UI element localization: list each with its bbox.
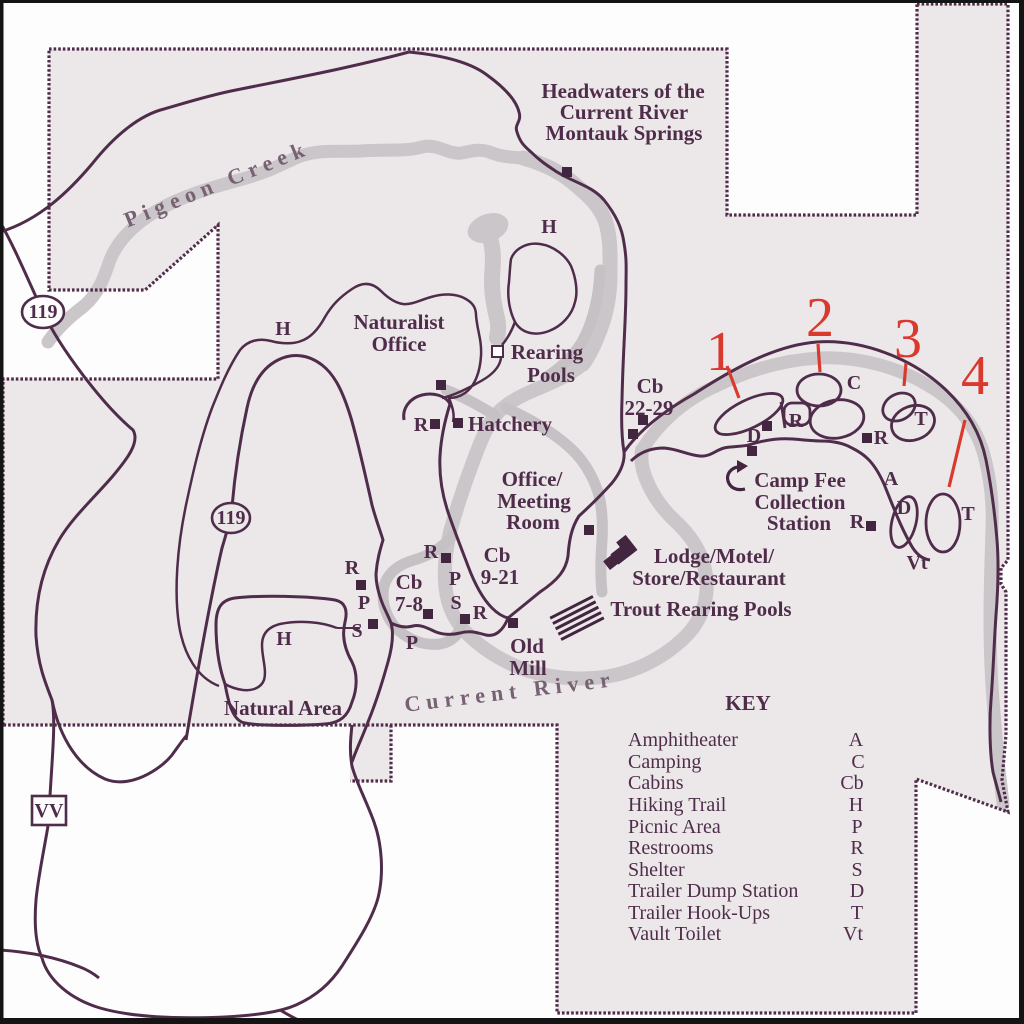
svg-text:R: R [414,414,429,436]
svg-text:Cb: Cb [396,570,423,594]
svg-text:3: 3 [894,308,922,370]
svg-text:D: D [897,497,911,519]
svg-text:Office: Office [372,332,427,356]
svg-text:Camp Fee: Camp Fee [754,468,846,492]
svg-text:Vault Toilet: Vault Toilet [628,923,722,945]
svg-text:R: R [473,602,488,624]
svg-text:Naturalist: Naturalist [354,310,445,334]
svg-text:119: 119 [29,301,58,323]
svg-text:R: R [874,427,889,449]
svg-text:R: R [345,557,360,579]
svg-text:P: P [449,568,461,590]
svg-text:A: A [849,729,864,751]
svg-text:KEY: KEY [725,691,771,715]
svg-text:Vt: Vt [906,552,927,574]
svg-text:Cabins: Cabins [628,772,684,794]
svg-text:P: P [851,816,862,838]
svg-text:22-29: 22-29 [625,396,674,420]
svg-text:Hiking Trail: Hiking Trail [628,794,727,816]
svg-text:H: H [275,318,291,340]
svg-text:Cb: Cb [637,374,664,398]
svg-text:VV: VV [35,800,64,822]
svg-text:H: H [276,628,292,650]
svg-text:Natural Area: Natural Area [224,696,343,720]
svg-text:P: P [406,632,418,654]
svg-text:Room: Room [506,510,560,534]
svg-text:Shelter: Shelter [628,859,685,881]
svg-text:T: T [961,503,975,525]
svg-text:2: 2 [806,287,834,349]
svg-text:S: S [851,859,862,881]
svg-text:9-21: 9-21 [481,565,520,589]
svg-text:Trailer Dump Station: Trailer Dump Station [628,880,798,902]
svg-text:D: D [850,880,864,902]
svg-text:Restrooms: Restrooms [628,837,714,859]
svg-text:Cb: Cb [484,543,511,567]
svg-text:Pools: Pools [527,363,575,387]
svg-text:Cb: Cb [840,772,863,794]
svg-text:T: T [914,408,928,430]
svg-text:T: T [851,902,863,924]
svg-text:P: P [358,592,370,614]
svg-text:R: R [424,541,439,563]
svg-text:Picnic Area: Picnic Area [628,816,721,838]
svg-text:Camping: Camping [628,751,701,773]
svg-text:Montauk Springs: Montauk Springs [546,121,703,145]
svg-text:Vt: Vt [843,923,863,945]
svg-text:Rearing: Rearing [511,340,584,364]
svg-text:Amphitheater: Amphitheater [628,729,738,751]
svg-text:7-8: 7-8 [395,592,423,616]
svg-text:C: C [847,372,861,394]
svg-text:Hatchery: Hatchery [468,412,552,436]
svg-text:S: S [351,620,362,642]
svg-text:Trout Rearing Pools: Trout Rearing Pools [610,597,791,621]
svg-text:R: R [789,410,804,432]
svg-text:Old: Old [510,634,544,658]
svg-text:D: D [747,425,761,447]
svg-text:119: 119 [217,507,246,529]
svg-text:Station: Station [767,511,832,535]
svg-text:4: 4 [961,345,989,407]
svg-text:R: R [850,837,864,859]
svg-text:A: A [884,468,899,490]
svg-text:H: H [849,794,863,816]
svg-text:Trailer Hook-Ups: Trailer Hook-Ups [628,902,770,924]
svg-text:Store/Restaurant: Store/Restaurant [632,566,786,590]
svg-text:H: H [541,216,557,238]
svg-text:C: C [851,751,864,773]
svg-text:R: R [850,511,865,533]
svg-text:S: S [450,592,461,614]
svg-text:Lodge/Motel/: Lodge/Motel/ [654,544,775,568]
svg-text:Office/: Office/ [502,467,564,491]
